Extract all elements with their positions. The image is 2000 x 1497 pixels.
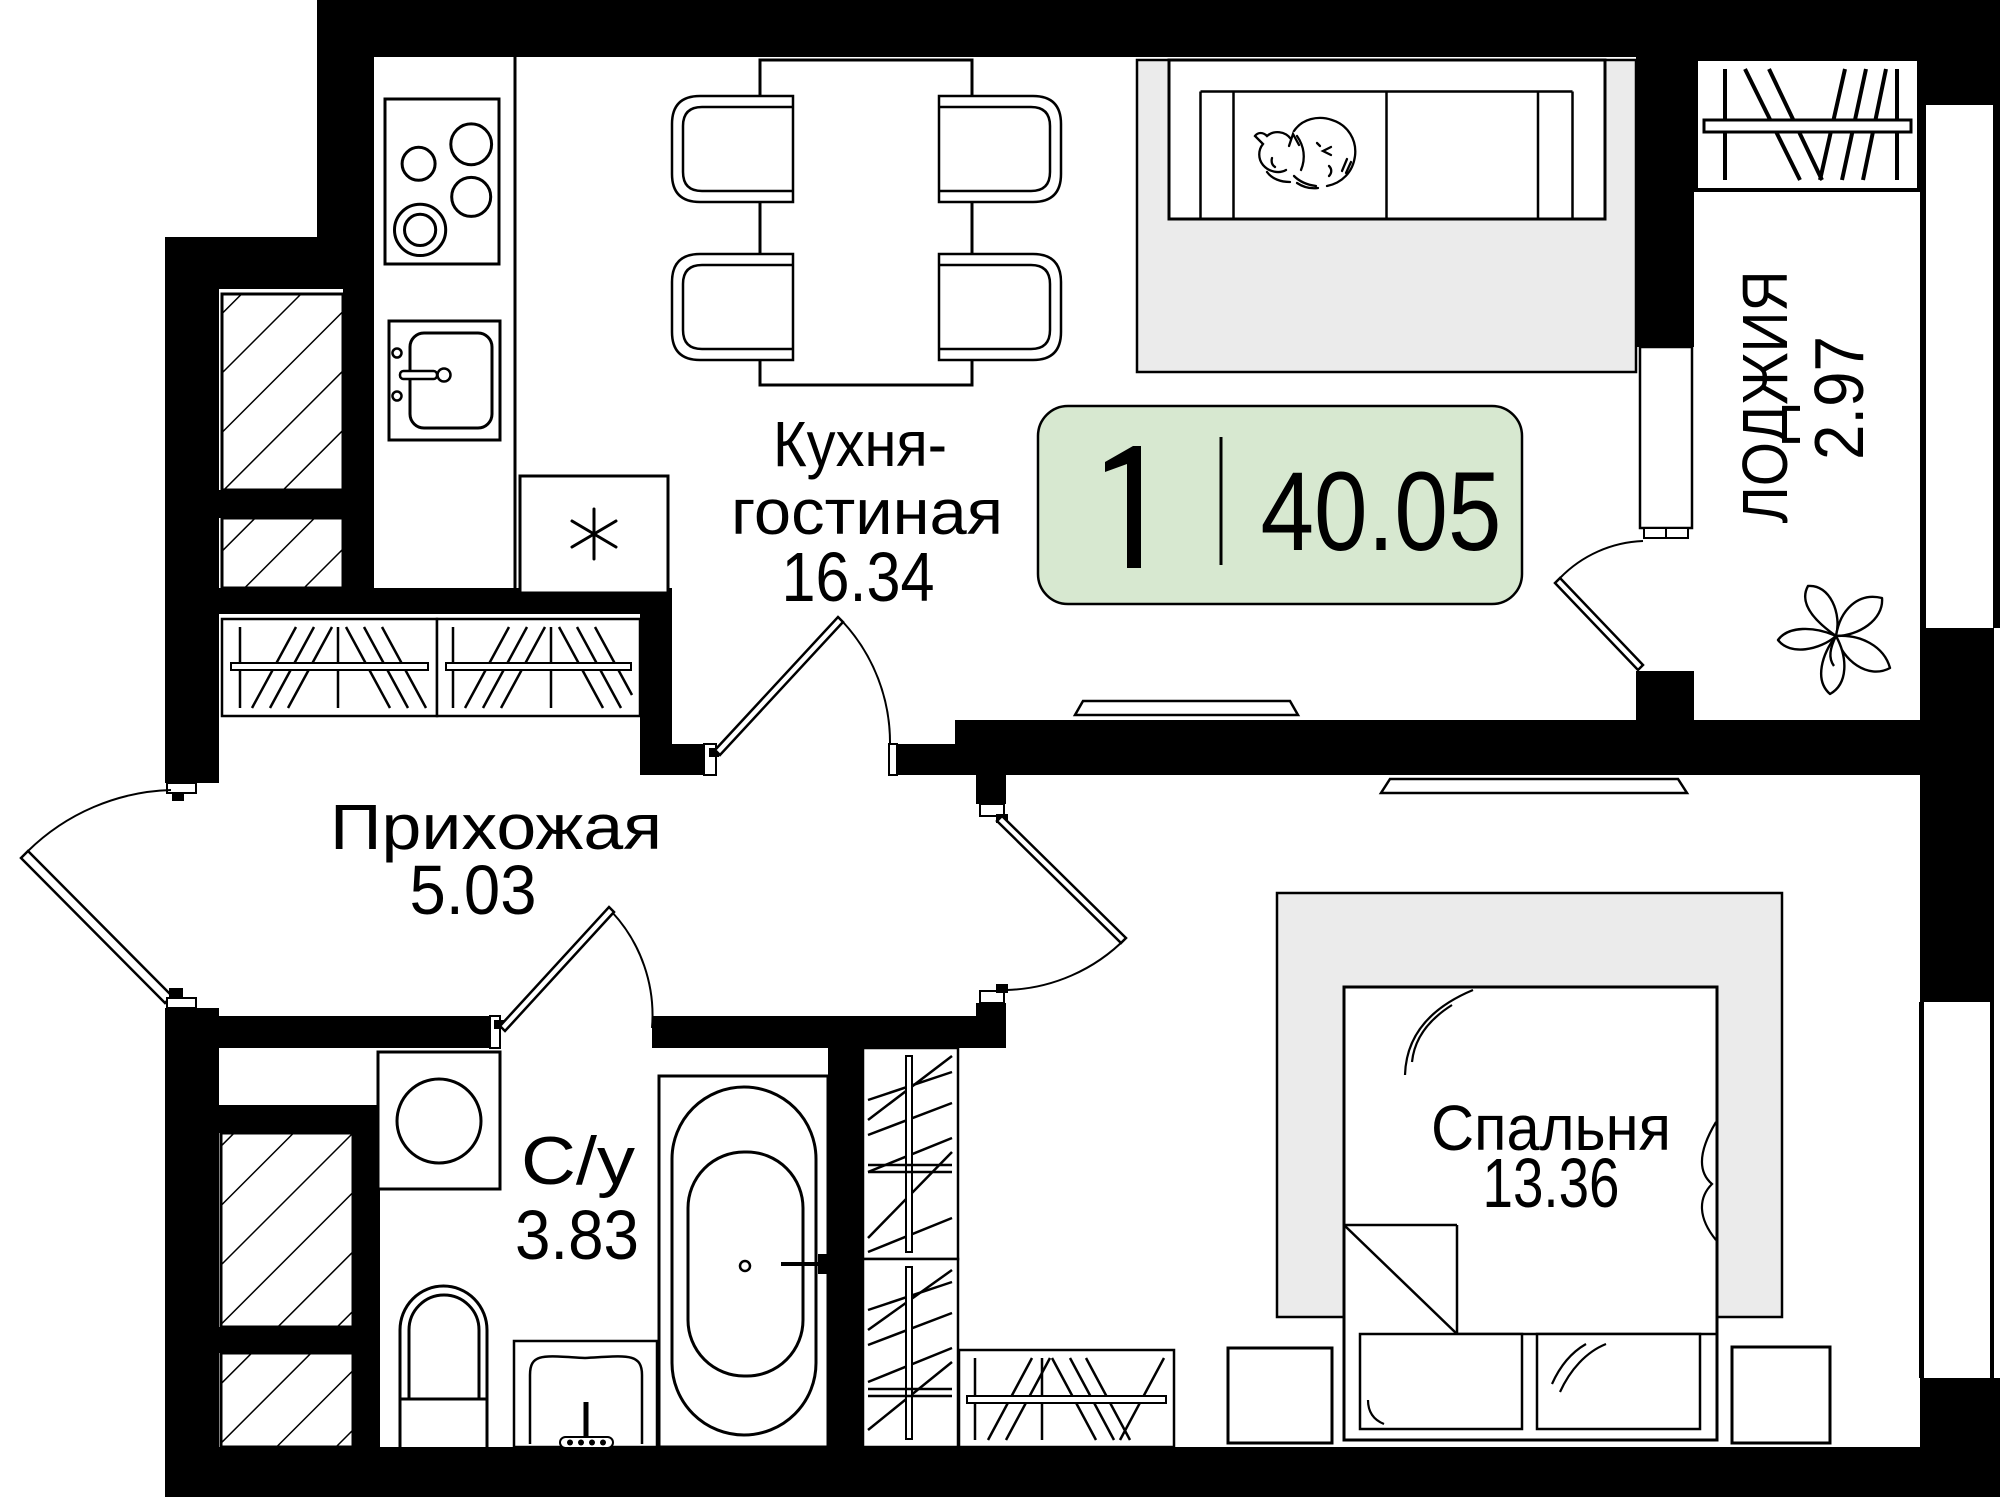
svg-text:13.36: 13.36: [1483, 1144, 1620, 1222]
svg-text:Кухня-: Кухня-: [773, 408, 947, 480]
svg-text:5.03: 5.03: [410, 851, 537, 929]
svg-text:40.05: 40.05: [1261, 449, 1502, 574]
svg-text:2.97: 2.97: [1800, 336, 1878, 460]
svg-text:ЛОДЖИЯ: ЛОДЖИЯ: [1729, 271, 1801, 524]
svg-text:3.83: 3.83: [515, 1196, 639, 1274]
svg-text:16.34: 16.34: [782, 538, 935, 616]
svg-text:С/у: С/у: [521, 1123, 635, 1199]
